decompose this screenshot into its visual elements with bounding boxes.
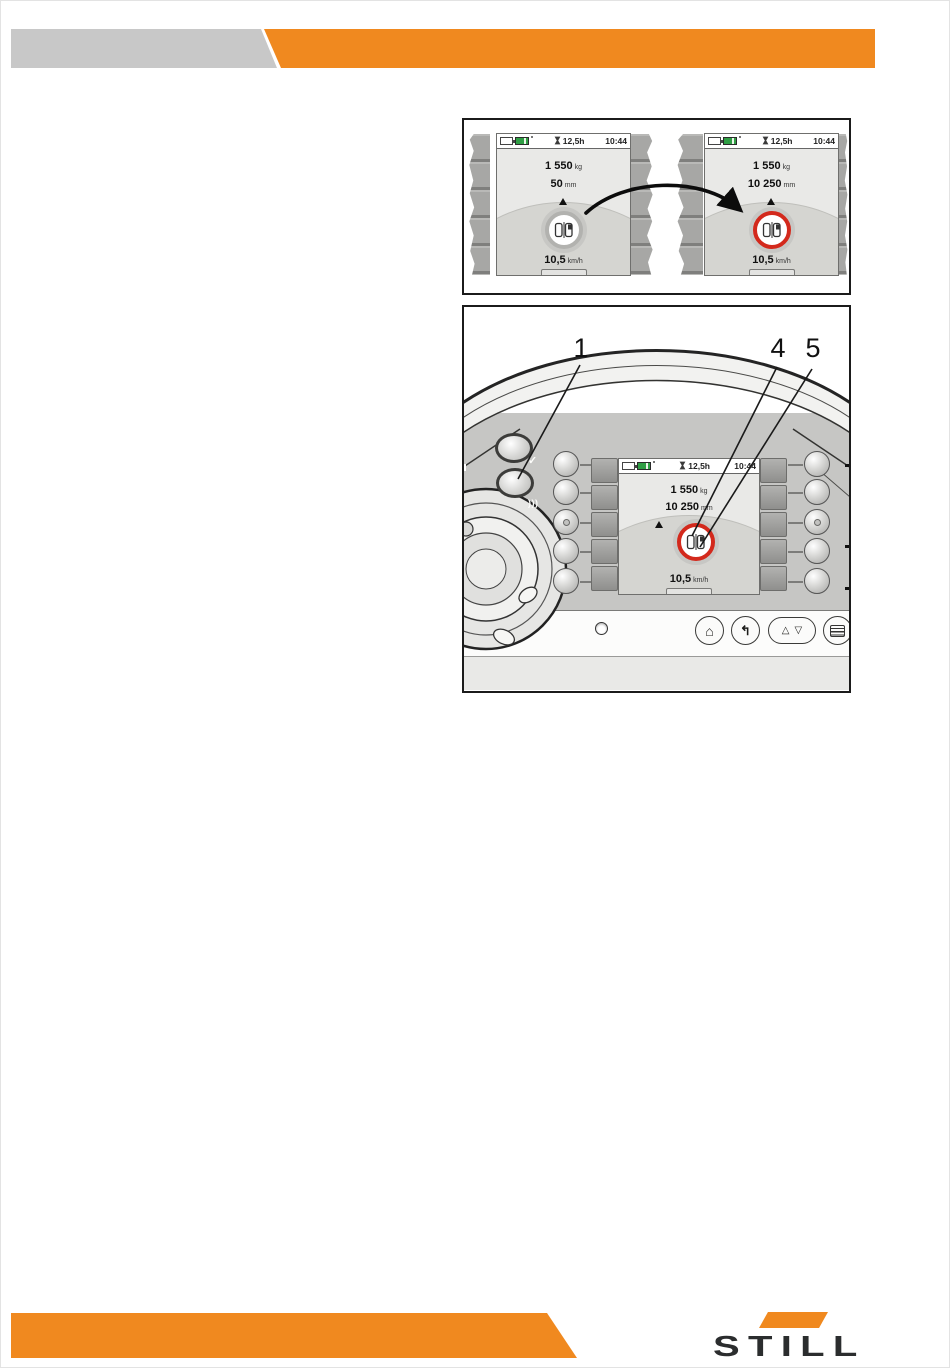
back-button: ↰ [731, 616, 760, 645]
clock-time: 10:44 [734, 461, 756, 471]
softkey-button [804, 509, 830, 535]
manual-page: 12,5h 10:44 1 550kg 50mm 10,5km/h [0, 0, 950, 1368]
operating-hours: 12,5h [688, 461, 710, 471]
status-bar: 12,5h 10:44 [497, 134, 630, 149]
drive-speed: 10,5km/h [619, 569, 759, 587]
screen-notch [749, 269, 795, 275]
selection-ring-red [753, 211, 791, 249]
wheel-icon [685, 534, 707, 550]
display-mode-button [823, 616, 851, 645]
softkey-button [804, 479, 830, 505]
status-dot [531, 136, 533, 138]
load-weight: 1 550kg [619, 480, 759, 498]
softkey-button [804, 451, 830, 477]
border-tick [845, 464, 850, 467]
callout-5: 5 [800, 333, 826, 364]
status-bar: 12,5h 10:44 [619, 459, 759, 474]
status-bar: 12,5h 10:44 [705, 134, 838, 149]
wheel-icon [761, 222, 783, 238]
softkey-button [553, 451, 579, 477]
battery-outline-icon [622, 462, 635, 470]
softkey-button [553, 538, 579, 564]
load-weight: 1 550kg [497, 156, 630, 174]
softkey-column-left [591, 458, 618, 593]
border-tick [462, 464, 466, 471]
blow-icon: ))) [528, 498, 539, 508]
softkey-column-torn [676, 134, 703, 275]
header-band-gray [11, 29, 283, 68]
wheel-position-indicator [749, 207, 795, 253]
softkey-button [553, 568, 579, 594]
still-logo-text: STILL [713, 1331, 866, 1364]
softkey-column-torn [838, 134, 848, 275]
home-icon: ⌂ [705, 623, 713, 639]
scroll-down-icon: ▽ [795, 625, 803, 636]
screen-notch [541, 269, 587, 275]
check-icon: ✓ [528, 454, 537, 467]
function-button-1 [496, 468, 534, 498]
clock-time: 10:44 [605, 136, 627, 146]
home-button: ⌂ [695, 616, 724, 645]
footer-band [11, 1313, 587, 1358]
drive-speed: 10,5km/h [705, 250, 838, 268]
hourglass-icon [762, 136, 769, 146]
lift-height: 10 250mm [619, 497, 759, 515]
operating-hours: 12,5h [771, 136, 793, 146]
selection-ring-red [677, 523, 715, 561]
clock-time: 10:44 [813, 136, 835, 146]
figure-operating-console: ✓ ))) 12,5h [462, 305, 851, 693]
direction-marker-icon [655, 521, 663, 528]
operating-hours: 12,5h [563, 136, 585, 146]
softkey-column-torn [631, 134, 654, 275]
direction-marker-icon [767, 198, 775, 205]
softkey-button [804, 538, 830, 564]
selection-ring-gray [545, 211, 583, 249]
console-bottom-strip [464, 656, 849, 690]
status-dot [653, 461, 655, 463]
softkey-button [553, 479, 579, 505]
display-icon [830, 625, 845, 637]
hourglass-icon [554, 136, 561, 146]
wheel-icon [553, 222, 575, 238]
border-tick [845, 587, 850, 590]
button-dot-icon [563, 519, 570, 526]
load-weight: 1 550kg [705, 156, 838, 174]
softkey-column-right [760, 458, 787, 593]
lift-height: 50mm [497, 174, 630, 192]
status-dot [739, 136, 741, 138]
button-dot-icon [814, 519, 821, 526]
figure-display-transition: 12,5h 10:44 1 550kg 50mm 10,5km/h [462, 118, 851, 295]
battery-outline-icon [708, 137, 721, 145]
scroll-button: △ ▽ [768, 617, 816, 644]
wheel-position-indicator [541, 207, 587, 253]
display-screen-left: 12,5h 10:44 1 550kg 50mm 10,5km/h [496, 133, 631, 276]
lift-height: 10 250mm [705, 174, 838, 192]
callout-1: 1 [568, 333, 594, 364]
display-screen: 12,5h 10:44 1 550kg 10 250mm 10,5km/h [618, 458, 760, 595]
border-tick [845, 545, 850, 548]
battery-outline-icon [500, 137, 513, 145]
softkey-button [804, 568, 830, 594]
display-screen-right: 12,5h 10:44 1 550kg 10 250mm 10,5km/h [704, 133, 839, 276]
drive-speed: 10,5km/h [497, 250, 630, 268]
wheel-position-indicator [673, 519, 719, 565]
back-icon: ↰ [740, 623, 751, 639]
status-led [595, 622, 608, 635]
scroll-up-icon: △ [782, 625, 790, 636]
battery-charge-icon [637, 462, 651, 470]
softkey-column-torn [468, 134, 490, 275]
battery-charge-icon [723, 137, 737, 145]
hourglass-icon [679, 461, 686, 471]
battery-charge-icon [515, 137, 529, 145]
screen-notch [666, 588, 712, 594]
softkey-button [553, 509, 579, 535]
header-band-orange [264, 29, 875, 68]
still-logo-flag-icon [759, 1312, 828, 1328]
callout-4: 4 [765, 333, 791, 364]
direction-marker-icon [559, 198, 567, 205]
